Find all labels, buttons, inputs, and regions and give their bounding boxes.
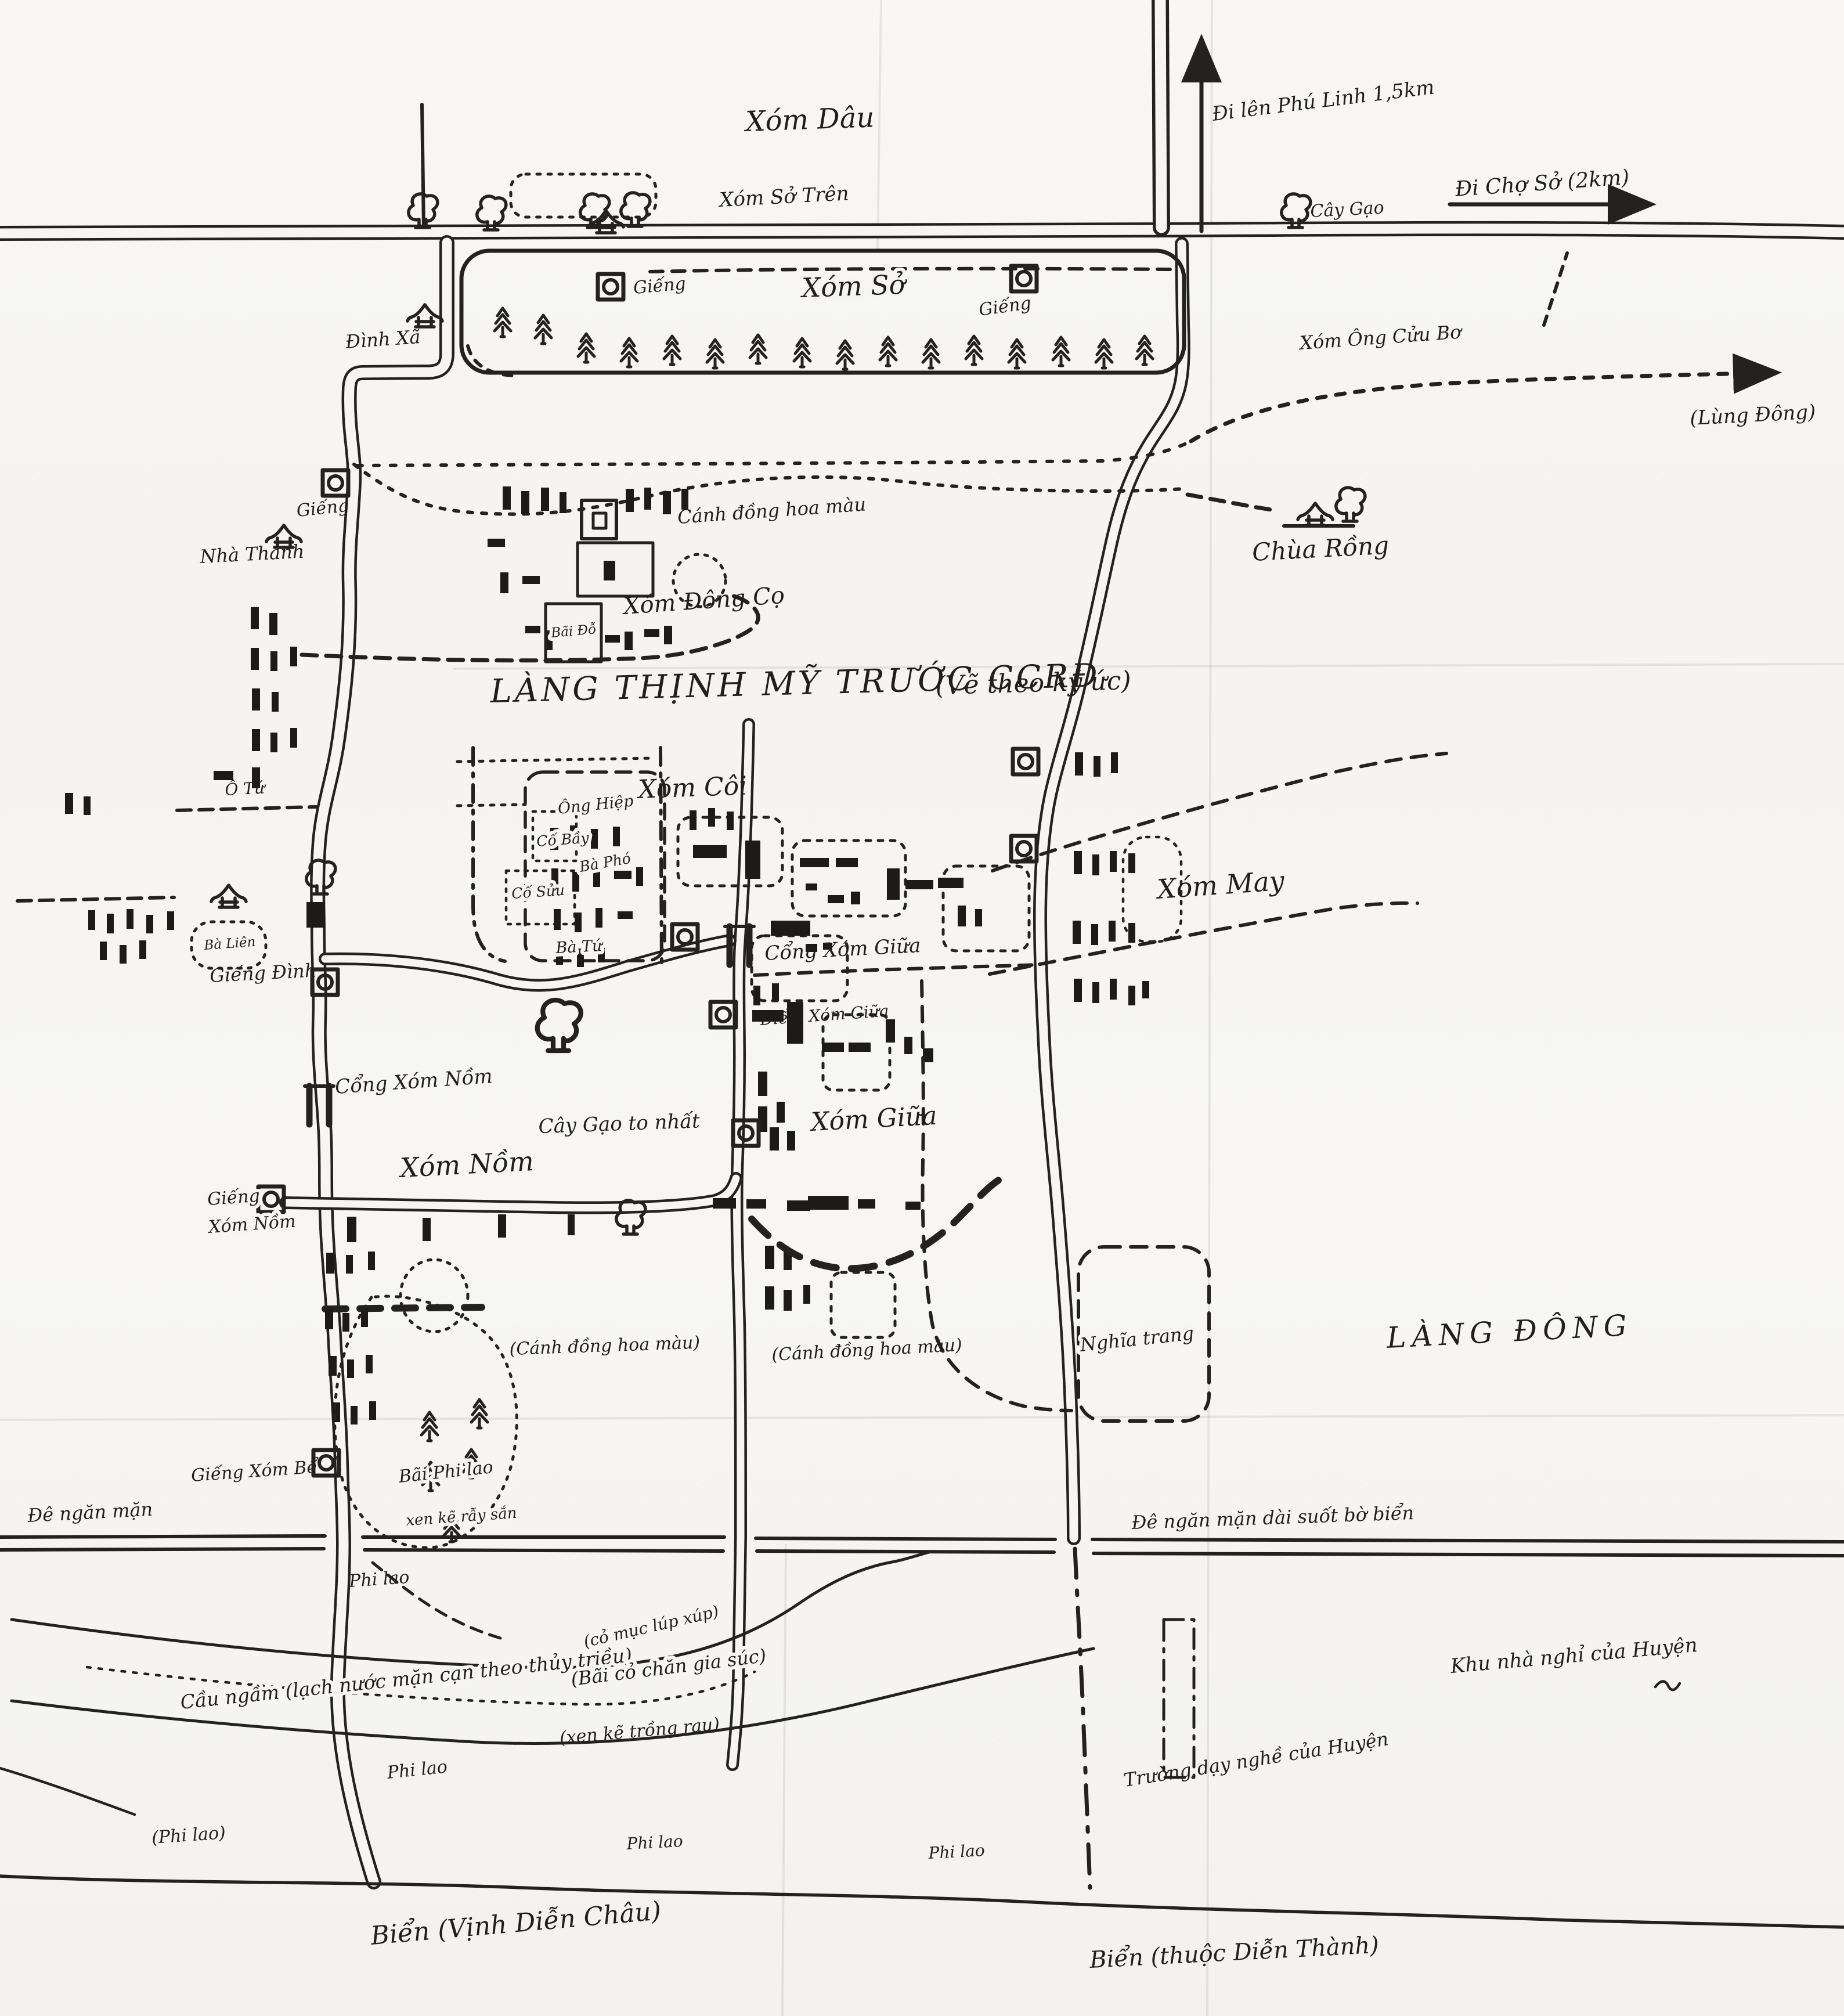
- cay-gao-to-nhat-tree: [537, 1000, 581, 1051]
- dinh-xa-icon: [407, 305, 442, 327]
- label-phi-lao-5: Phi lao: [928, 1841, 986, 1863]
- label-xom-coi: Xóm Côi: [636, 771, 748, 805]
- label-lang-dong: LÀNG ĐÔNG: [1385, 1308, 1633, 1355]
- squiggle-mark: [1655, 1681, 1680, 1690]
- label-di-len-phu-linh: Đi lên Phú Linh 1,5km: [1210, 75, 1435, 126]
- label-xom-so: Xóm Sở: [800, 269, 908, 304]
- label-bien-vinh: Biển (Vịnh Diễn Châu): [369, 1895, 662, 1951]
- well-icon-west: [323, 470, 348, 496]
- label-xom-nom: Xóm Nồm: [398, 1145, 535, 1184]
- tree-icon: [621, 193, 650, 226]
- label-xom-so-tren: Xóm Sở Trên: [717, 182, 849, 212]
- label-ba-tu: Bà Tứ: [555, 937, 604, 957]
- label-phi-lao-1: Phi lao: [348, 1567, 410, 1592]
- label-phi-lao-4: Phi lao: [626, 1831, 684, 1853]
- ong-hiep-block: [457, 748, 665, 967]
- hand-drawn-village-map: Xóm Dâu Xóm Sở Trên Đi lên Phú Linh 1,5k…: [0, 0, 1844, 2016]
- well-icon-xom-so-1: [598, 274, 623, 300]
- label-chua-rong: Chùa Rồng: [1251, 531, 1390, 567]
- label-xom-dong-co: Xóm Đông Cọ: [620, 582, 785, 621]
- well-icon-xom-may-2: [1011, 836, 1037, 861]
- label-nghia-trang: Nghĩa trang: [1078, 1322, 1195, 1356]
- label-khu-nha-nghi: Khu nhà nghỉ của Huyện: [1449, 1633, 1698, 1678]
- label-dinh-xa: Đình Xã: [344, 326, 421, 353]
- small-shrine-icon: [211, 885, 246, 907]
- shoreline: [0, 1876, 1844, 1927]
- label-gieng-west: Giếng: [295, 496, 350, 521]
- label-xom-ong-cuu-bo: Xóm Ông Cửu Bơ: [1297, 320, 1463, 354]
- label-cong-xom-giua: Cổng Xóm Giữa: [764, 934, 921, 965]
- left-road-houses: [65, 607, 325, 964]
- label-xom-may: Xóm May: [1154, 865, 1286, 905]
- well-icon-diem-xom-giua: [710, 1002, 736, 1027]
- label-bai-phi-lao: Bãi Phi lao: [397, 1457, 494, 1487]
- label-co-muc: (cỏ mục lúp xúp): [582, 1602, 720, 1651]
- label-diem-xom-giua: Điểm Xóm Giữa: [759, 1001, 889, 1030]
- label-co-bay: Cố Bầy: [536, 830, 590, 850]
- label-nha-thanh: Nhà Thánh: [199, 540, 305, 568]
- label-bai-do: Bãi Đỗ: [550, 621, 597, 641]
- label-truong-day-nghe: Trường dạy nghề của Huyện: [1122, 1728, 1390, 1791]
- label-co-suu: Cố Sửu: [511, 882, 565, 902]
- label-xen-ke-trong-rau: (xen kẽ trồng rau): [559, 1714, 721, 1748]
- label-gieng-band-2: Giếng: [977, 293, 1033, 320]
- label-gieng-xom-be: Giếng Xóm Bể: [190, 1456, 320, 1486]
- label-xom-dau: Xóm Dâu: [742, 101, 875, 138]
- well-icon-gieng-xom-nom: [258, 1186, 284, 1212]
- pine-tree-icons: [495, 308, 1153, 369]
- village-map-svg: Xóm Dâu Xóm Sở Trên Đi lên Phú Linh 1,5k…: [0, 0, 1844, 2016]
- label-de-ngan-man-dai: Đê ngăn mặn dài suốt bờ biển: [1131, 1502, 1414, 1534]
- label-ong-hiep: Ông Hiệp: [557, 790, 634, 817]
- field-paths: [302, 253, 1774, 661]
- label-cay-gao-top: Cây Gạo: [1310, 197, 1385, 222]
- label-xom-giua: Xóm Giữa: [809, 1101, 938, 1137]
- label-ba-lien: Bà Liên: [203, 935, 257, 953]
- map-title-note: (Vẽ theo ký ức): [935, 666, 1131, 701]
- label-canh-dong-2: (Cánh đồng hoa màu): [509, 1333, 701, 1359]
- roads: [0, 0, 1844, 1888]
- label-lung-dong: (Lùng Đông): [1689, 401, 1816, 430]
- label-o-tu: Ô Tứ: [225, 777, 267, 799]
- label-phi-lao-2: Phi lao: [385, 1757, 448, 1783]
- label-gieng-dinh: Giếng Đình: [209, 959, 317, 987]
- label-xen-ke-ray-san: xen kẽ rẫy sắn: [405, 1504, 517, 1530]
- tree-icon: [1336, 488, 1365, 521]
- label-de-ngan-man: Đê ngăn mặn: [26, 1498, 153, 1527]
- label-canh-dong-3: (Cánh đồng hoa màu): [771, 1335, 963, 1365]
- chua-rong-group: [1298, 488, 1365, 525]
- dotted-plot: [511, 174, 656, 217]
- label-gieng-xom-nom-1: Giếng: [207, 1186, 261, 1210]
- pagoda-icon: [1298, 503, 1333, 525]
- label-di-cho-so: Đi Chợ Sở (2km): [1454, 165, 1630, 201]
- top-road-features: [409, 42, 1648, 233]
- xom-so-hatched-band: [461, 251, 1184, 376]
- label-gieng-band-1: Giếng: [633, 273, 687, 298]
- label-cong-xom-nom: Cổng Xóm Nồm: [334, 1065, 493, 1099]
- vocational-school-building: [1164, 1620, 1194, 1777]
- label-bien-thuoc: Biển (thuộc Diễn Thành): [1088, 1932, 1380, 1974]
- label-gieng-xom-nom-2: Xóm Nồm: [207, 1211, 297, 1238]
- label-canh-dong-1: Cánh đồng hoa màu: [677, 493, 867, 528]
- label-cay-gao-to-nhat: Cây Gạo to nhất: [538, 1109, 701, 1138]
- well-icon-xom-may-1: [1013, 749, 1038, 774]
- label-phi-lao-3: (Phi lao): [151, 1823, 226, 1848]
